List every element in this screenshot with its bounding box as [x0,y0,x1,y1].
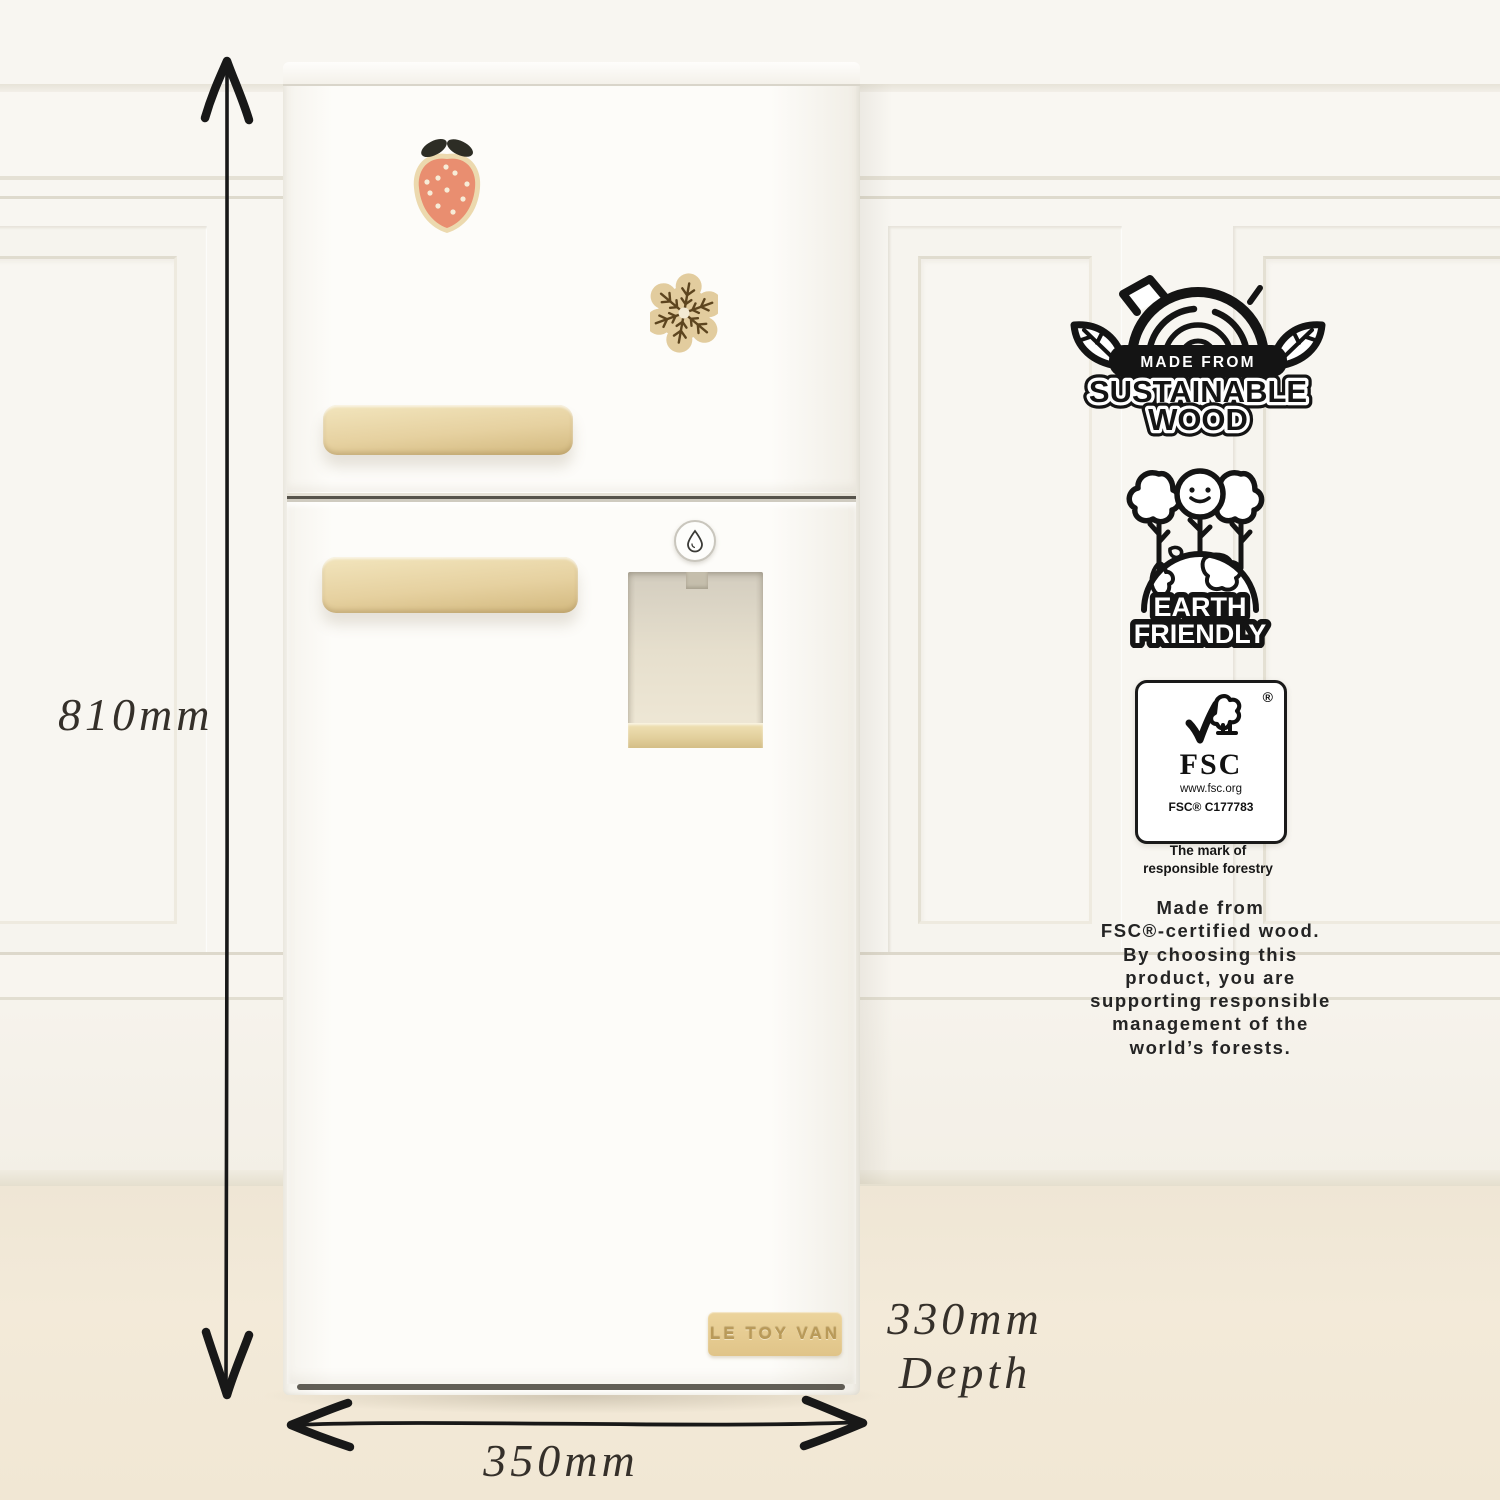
freezer-door-handle [323,405,573,455]
fsc-description-line: supporting responsible [1058,989,1363,1012]
depth-caption: Depth [850,1346,1080,1400]
water-droplet-icon [685,529,705,553]
sustainable-wood-icon: MADE FROM SUSTAINABLE SUSTAINABLE SUSTAI… [1053,266,1343,438]
fsc-description-text: Made from FSC®-certified wood. By choosi… [1058,896,1363,1059]
fsc-description-line: FSC®-certified wood. [1058,919,1363,942]
brand-plaque-label: LE TOY VAN [710,1324,840,1344]
snowflake-icon [650,268,718,356]
badge-wood-label: WOOD [1148,402,1248,437]
water-dispenser-niche [628,572,763,748]
fsc-description-line: By choosing this [1058,943,1363,966]
wainscot-panel-inner [0,256,177,924]
dispenser-spout [686,572,708,589]
fsc-registered-mark: ® [1263,689,1273,705]
fsc-name: FSC [1138,750,1284,780]
fridge-wall-shadow [858,84,892,1184]
fsc-tagline-line2: responsible forestry [1108,860,1308,878]
depth-dimension-label: 330mm Depth [850,1292,1080,1401]
fsc-license-code: FSC® C177783 [1138,800,1284,814]
width-dimension-label: 350mm [411,1434,711,1487]
water-dispenser-button [674,520,716,562]
badge-made-from-label: MADE FROM [1140,354,1255,371]
fsc-description-line: management of the [1058,1012,1363,1035]
fsc-description-line: product, you are [1058,966,1363,989]
brand-plaque: LE TOY VAN [708,1312,842,1356]
fsc-checkmark-tree-icon [1179,691,1243,747]
fsc-tagline: The mark of responsible forestry [1108,842,1308,878]
depth-value: 330mm [850,1292,1080,1346]
strawberry-magnet [408,136,486,238]
fsc-url: www.fsc.org [1138,783,1284,795]
toy-fridge: LE TOY VAN [283,62,860,1395]
height-dimension-label: 810mm [58,688,213,741]
wainscot-panel-left [0,226,207,954]
fridge-door-handle [322,557,578,613]
earth-friendly-badge: EARTH EARTH FRIENDLY FRIENDLY [1103,460,1298,648]
fsc-description-line: Made from [1058,896,1363,919]
fsc-certification-card: ® FSC www.fsc.org FSC® C177783 [1135,680,1287,844]
badge-earth-label: EARTH [1154,592,1247,622]
fsc-tagline-line1: The mark of [1108,842,1308,860]
fridge-base-shadow [297,1384,845,1390]
sustainable-wood-badge: MADE FROM SUSTAINABLE SUSTAINABLE SUSTAI… [1053,266,1343,438]
door-seam [287,493,856,502]
snowflake-magnet [650,268,718,356]
product-dimension-diagram: LE TOY VAN 810mm 350mm 330mm Depth [0,0,1500,1500]
strawberry-icon [408,136,486,238]
dispenser-shelf [628,723,763,748]
fridge-door [287,502,856,1384]
badge-friendly-label: FRIENDLY [1134,619,1267,648]
earth-friendly-icon: EARTH EARTH FRIENDLY FRIENDLY [1103,460,1298,648]
fsc-description-line: world’s forests. [1058,1036,1363,1059]
fridge-top-cap [283,62,860,86]
